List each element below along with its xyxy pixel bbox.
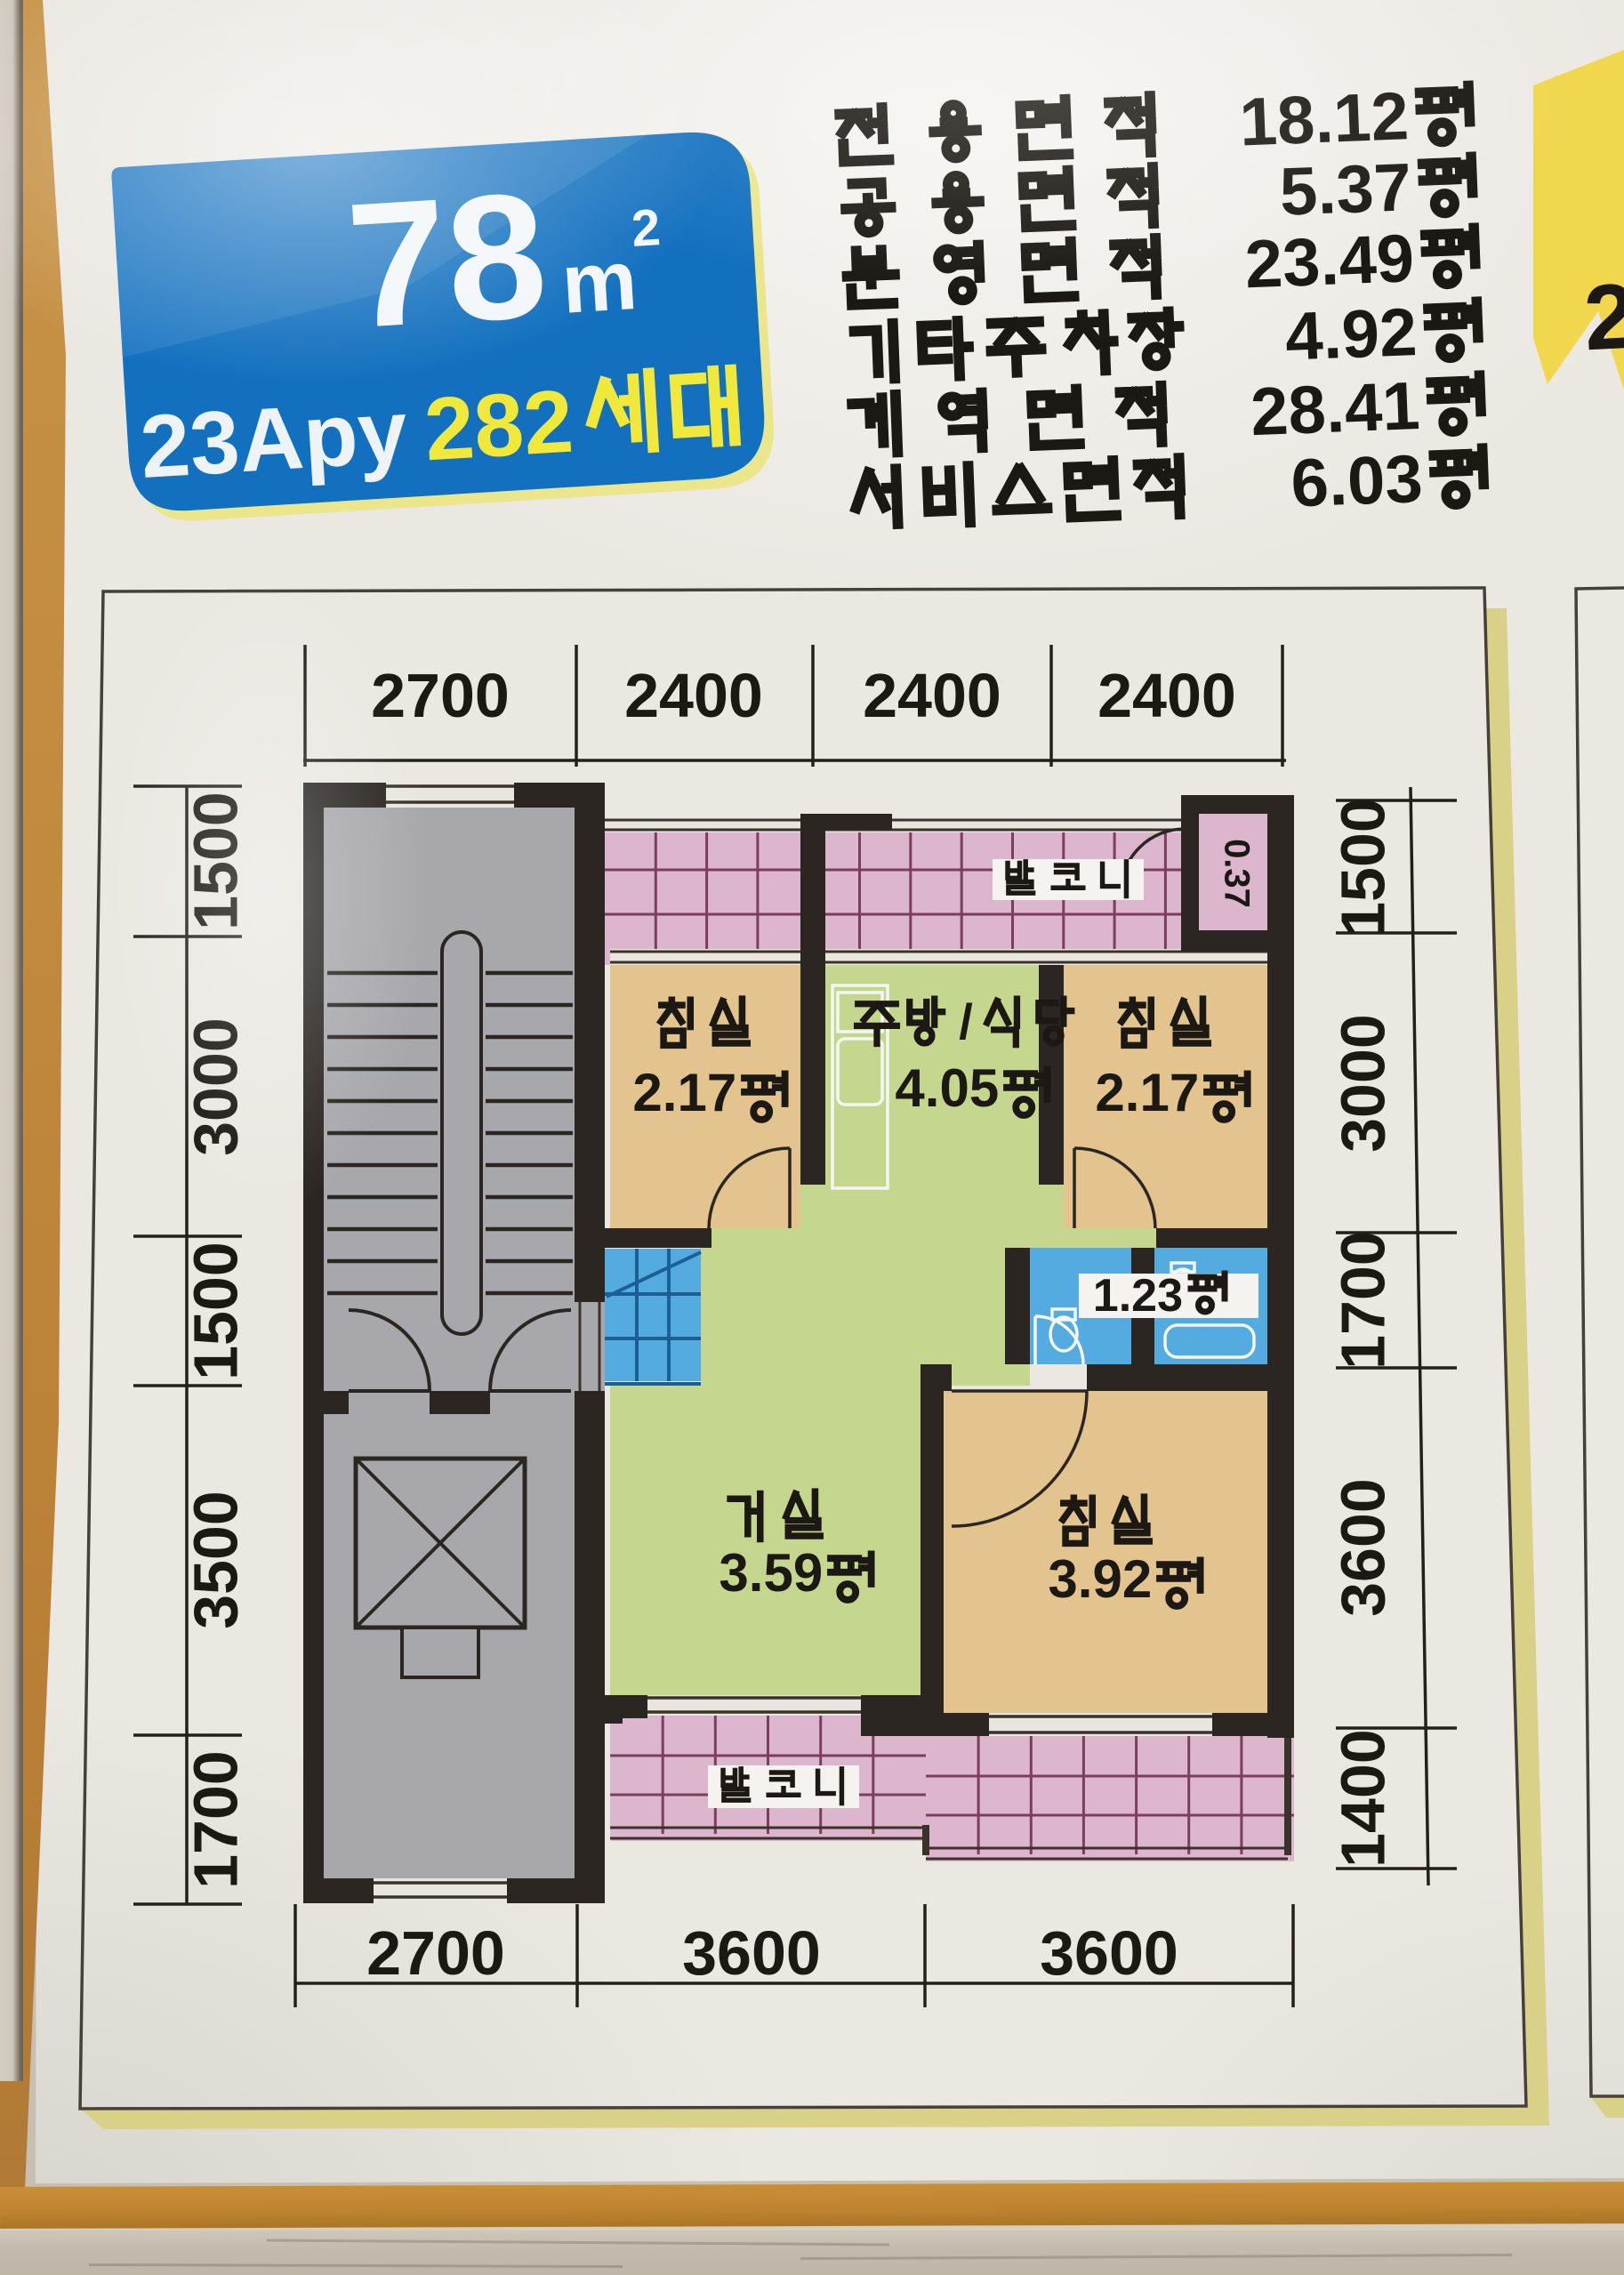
svg-text:3600: 3600 (1328, 1478, 1397, 1617)
svg-text:1400: 1400 (1328, 1729, 1397, 1868)
svg-text:3500: 3500 (181, 1491, 250, 1629)
svg-text:1.23: 1.23 (1093, 1270, 1183, 1322)
svg-text:2.17: 2.17 (1095, 1063, 1199, 1122)
svg-text:3.92: 3.92 (1048, 1549, 1152, 1609)
svg-text:2700: 2700 (366, 1918, 505, 1988)
svg-text:4.05: 4.05 (895, 1058, 999, 1118)
svg-text:3600: 3600 (682, 1918, 821, 1988)
svg-text:1700: 1700 (181, 1750, 250, 1889)
svg-text:3.59: 3.59 (719, 1543, 823, 1603)
svg-text:/: / (959, 993, 973, 1049)
svg-text:0.37: 0.37 (1217, 839, 1256, 908)
svg-text:1500: 1500 (1328, 798, 1397, 937)
svg-text:3600: 3600 (1040, 1918, 1178, 1988)
svg-text:1700: 1700 (1328, 1231, 1397, 1370)
svg-text:3000: 3000 (1328, 1014, 1397, 1153)
